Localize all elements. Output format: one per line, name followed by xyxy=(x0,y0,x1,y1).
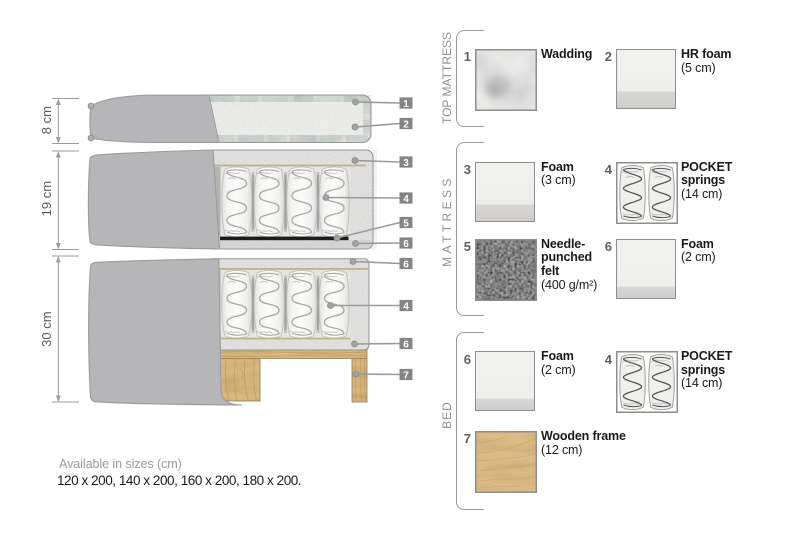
svg-text:6: 6 xyxy=(403,259,409,270)
svg-text:19 cm: 19 cm xyxy=(39,181,54,216)
svg-text:4: 4 xyxy=(403,194,409,205)
svg-text:1: 1 xyxy=(403,99,409,110)
svg-text:5: 5 xyxy=(403,218,409,229)
svg-text:2: 2 xyxy=(403,119,409,130)
svg-text:30 cm: 30 cm xyxy=(39,311,54,346)
svg-text:6: 6 xyxy=(403,239,409,250)
svg-text:3: 3 xyxy=(403,158,409,169)
svg-text:8 cm: 8 cm xyxy=(39,106,54,134)
svg-text:7: 7 xyxy=(403,370,409,381)
svg-text:6: 6 xyxy=(403,339,409,350)
svg-text:4: 4 xyxy=(403,301,409,312)
